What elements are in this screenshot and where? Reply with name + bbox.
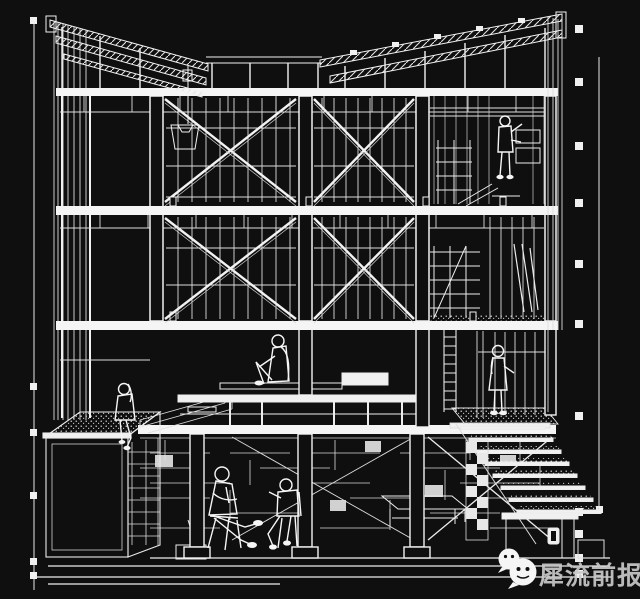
screenshot-root: 犀流前报 xyxy=(0,0,640,599)
watermark-text: 犀流前报 xyxy=(539,561,640,590)
section-drawing: 犀流前报 xyxy=(0,0,640,599)
eaves-band xyxy=(56,88,558,96)
